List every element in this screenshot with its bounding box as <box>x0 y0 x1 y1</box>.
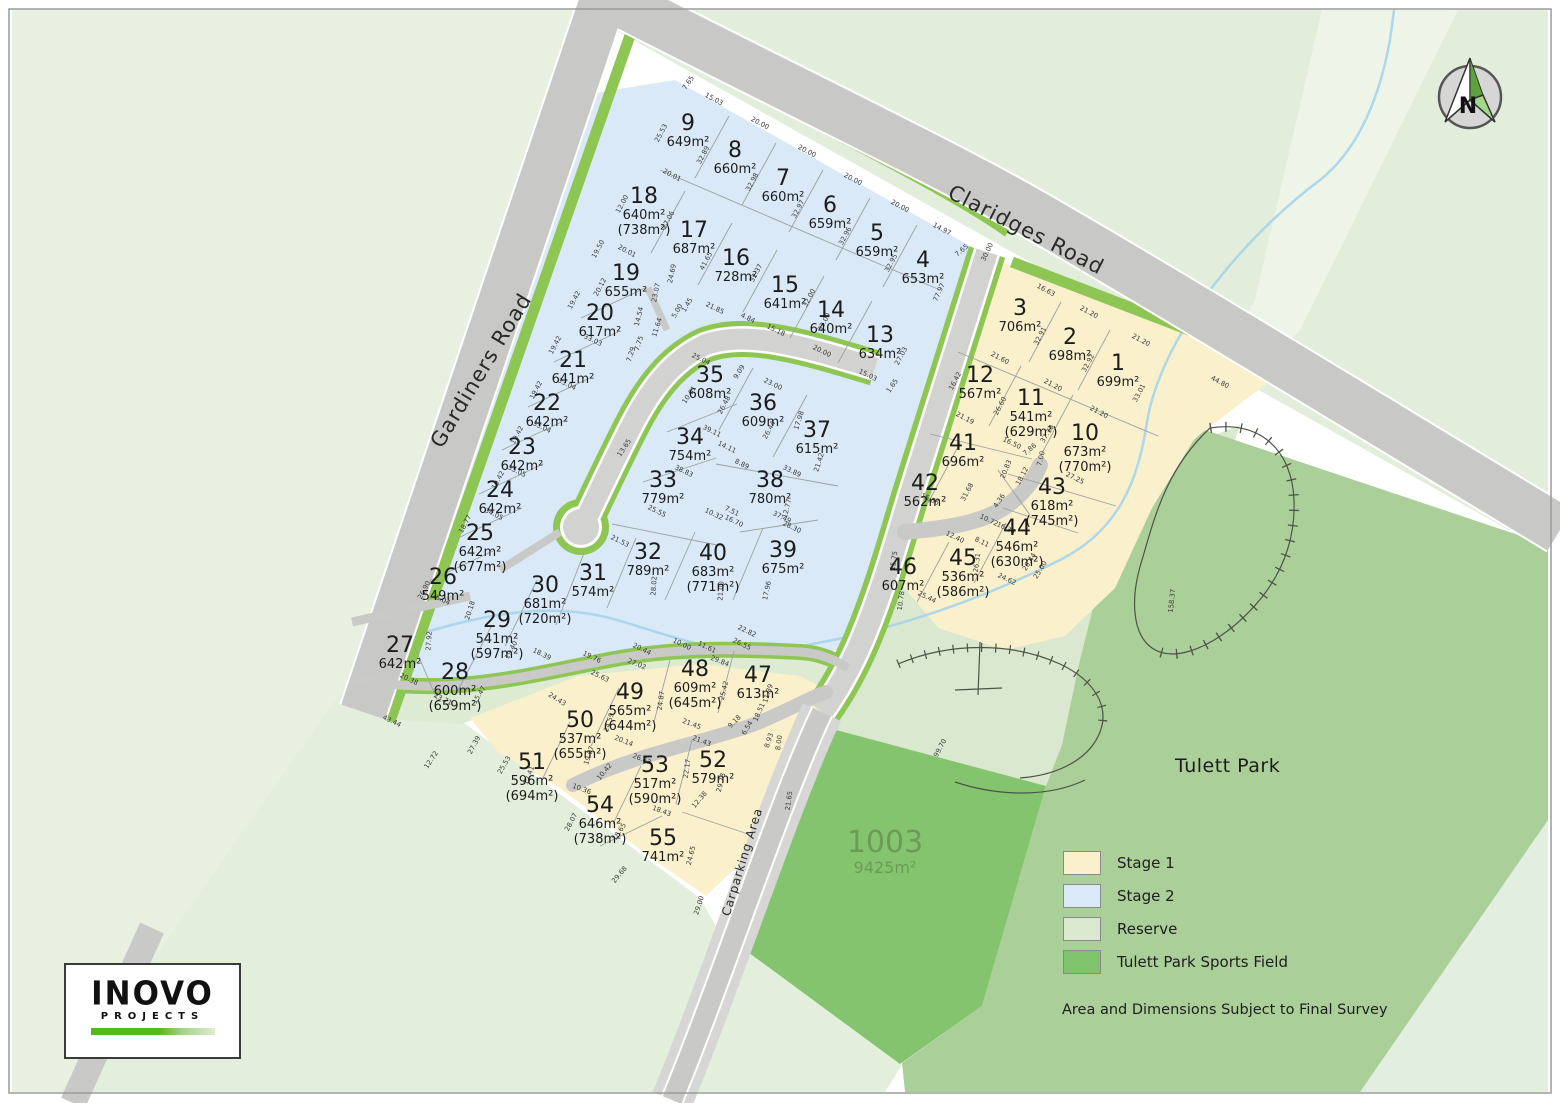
lot-area: 549m² <box>422 589 465 604</box>
lot-number: 12 <box>966 363 994 388</box>
lot-area: 607m² <box>882 579 925 594</box>
lot-number: 33 <box>649 468 677 493</box>
lot-number: 3 <box>1013 296 1027 321</box>
lot-area: 659m² <box>809 217 852 232</box>
lot-area-gross: (655m²) <box>554 747 607 762</box>
lot-area-gross: (597m²) <box>471 647 524 662</box>
lot-area: 574m² <box>572 585 615 600</box>
lot-area: 609m² <box>742 415 785 430</box>
logo-wordmark: INOVO <box>66 978 239 1010</box>
lot-area-gross: (629m²) <box>1005 425 1058 440</box>
lot-area: 640m² <box>810 322 853 337</box>
lot-area: 780m² <box>749 492 792 507</box>
lot-number: 21 <box>559 348 587 373</box>
lot-number: 11 <box>1017 386 1045 411</box>
lot-number: 10 <box>1071 421 1099 446</box>
lot-number: 24 <box>486 478 514 503</box>
lot-area: 681m² <box>524 597 567 612</box>
lot-label-1003: 10039425m² <box>847 825 923 877</box>
lot-area: 600m² <box>434 684 477 699</box>
culdesac-bulb <box>563 509 599 545</box>
lot-number: 16 <box>722 246 750 271</box>
lot-area: 617m² <box>579 325 622 340</box>
lot-area: 562m² <box>904 495 947 510</box>
lot-number: 30 <box>531 573 559 598</box>
lot-number: 39 <box>769 538 797 563</box>
lot-area-gross: (770m²) <box>1059 460 1112 475</box>
legend-item-stage1: Stage 1 <box>1063 852 1403 874</box>
compass-n-letter: N <box>1459 94 1477 119</box>
lot-area-gross: (694m²) <box>506 789 559 804</box>
sports-field-swatch <box>1063 950 1101 974</box>
legend: Stage 1 Stage 2 Reserve Tulett Park Spor… <box>1063 852 1403 984</box>
lot-area: 699m² <box>1097 375 1140 390</box>
lot-area-gross: (586m²) <box>937 585 990 600</box>
lot-number: 34 <box>676 425 704 450</box>
lot-number: 13 <box>866 323 894 348</box>
lot-area: 706m² <box>999 320 1042 335</box>
lot-number: 1 <box>1111 351 1125 376</box>
lot-number: 5 <box>870 221 884 246</box>
lot-number: 55 <box>649 826 677 851</box>
lot-area: 696m² <box>942 455 985 470</box>
lot-area-gross: (590m²) <box>629 792 682 807</box>
legend-label: Reserve <box>1117 920 1177 938</box>
lot-area: 673m² <box>1064 445 1107 460</box>
lot-area: 634m² <box>859 347 902 362</box>
lot-area: 642m² <box>379 657 422 672</box>
lot-number: 15 <box>771 273 799 298</box>
survey-note: Area and Dimensions Subject to Final Sur… <box>1062 1002 1388 1018</box>
lot-number: 22 <box>533 391 561 416</box>
lot-number: 42 <box>911 471 939 496</box>
lot-area: 567m² <box>959 387 1002 402</box>
lot-number: 20 <box>586 301 614 326</box>
lot-area-gross: (738m²) <box>574 832 627 847</box>
lot-area: 565m² <box>609 704 652 719</box>
lot-number: 26 <box>429 565 457 590</box>
lot-area: 537m² <box>559 732 602 747</box>
lot-number: 27 <box>386 633 414 658</box>
lot-area: 642m² <box>479 502 522 517</box>
lot-area: 641m² <box>552 372 595 387</box>
lot-area: 609m² <box>674 681 717 696</box>
lot-area: 683m² <box>692 565 735 580</box>
lot-number: 6 <box>823 193 837 218</box>
logo-gradient-bar <box>91 1028 215 1035</box>
lot-number: 32 <box>634 540 662 565</box>
lot-area: 541m² <box>476 632 519 647</box>
lot-number: 29 <box>483 608 511 633</box>
stage2-swatch <box>1063 884 1101 908</box>
legend-label: Tulett Park Sports Field <box>1117 953 1288 971</box>
lot-number: 9 <box>681 111 695 136</box>
lot-area: 618m² <box>1031 499 1074 514</box>
inovo-logo: INOVO PROJECTS <box>64 963 241 1059</box>
lot-area: 754m² <box>669 449 712 464</box>
lot-area: 642m² <box>459 545 502 560</box>
lot-number: 25 <box>466 521 494 546</box>
lot-area: 596m² <box>511 774 554 789</box>
lot-number: 45 <box>949 546 977 571</box>
lot-number: 19 <box>612 261 640 286</box>
legend-item-reserve: Reserve <box>1063 918 1403 940</box>
lot-area: 687m² <box>673 242 716 257</box>
lot-area: 659m² <box>856 245 899 260</box>
lot-area: 608m² <box>689 387 732 402</box>
lot-number: 1003 <box>847 825 923 860</box>
lot-number: 48 <box>681 657 709 682</box>
lot-area: 579m² <box>692 772 735 787</box>
lot-area: 546m² <box>996 540 1039 555</box>
lot-area-gross: (771m²) <box>687 580 740 595</box>
lot-number: 40 <box>699 541 727 566</box>
lot-area-gross: (659m²) <box>429 699 482 714</box>
lot-area: 660m² <box>762 190 805 205</box>
lot-area: 646m² <box>579 817 622 832</box>
lot-number: 4 <box>916 248 930 273</box>
lot-number: 17 <box>680 218 708 243</box>
lot-area: 640m² <box>623 208 666 223</box>
legend-item-stage2: Stage 2 <box>1063 885 1403 907</box>
reserve-swatch <box>1063 917 1101 941</box>
lot-area: 613m² <box>737 687 780 702</box>
lot-number: 38 <box>756 468 784 493</box>
dimension-label: 27.92 <box>424 631 433 651</box>
lot-number: 44 <box>1003 516 1031 541</box>
lot-number: 31 <box>579 561 607 586</box>
lot-area-gross: (630m²) <box>991 555 1044 570</box>
lot-number: 36 <box>749 391 777 416</box>
lot-area: 728m² <box>715 270 758 285</box>
legend-label: Stage 2 <box>1117 887 1175 905</box>
lot-number: 23 <box>508 435 536 460</box>
lot-area: 615m² <box>796 442 839 457</box>
lot-area: 655m² <box>605 285 648 300</box>
park-label: Tulett Park <box>1175 755 1280 777</box>
legend-item-sports-field: Tulett Park Sports Field <box>1063 951 1403 973</box>
lot-number: 8 <box>728 138 742 163</box>
lot-area: 779m² <box>642 492 685 507</box>
lot-area-gross: (738m²) <box>618 223 671 238</box>
lot-area-gross: (720m²) <box>519 612 572 627</box>
lot-area-gross: (677m²) <box>454 560 507 575</box>
lot-area: 653m² <box>902 272 945 287</box>
lot-number: 49 <box>616 680 644 705</box>
lot-area-gross: (645m²) <box>669 696 722 711</box>
lot-area: 698m² <box>1049 349 1092 364</box>
lot-number: 51 <box>518 750 546 775</box>
lot-number: 37 <box>803 418 831 443</box>
lot-area-gross: (644m²) <box>604 719 657 734</box>
lot-area: 675m² <box>762 562 805 577</box>
lot-number: 28 <box>441 660 469 685</box>
lot-number: 43 <box>1038 475 1066 500</box>
lot-area: 642m² <box>501 459 544 474</box>
lot-number: 35 <box>696 363 724 388</box>
stage1-swatch <box>1063 851 1101 875</box>
lot-area: 789m² <box>627 564 670 579</box>
lot-area: 536m² <box>942 570 985 585</box>
lot-area: 541m² <box>1010 410 1053 425</box>
lot-area-gross: (745m²) <box>1026 514 1079 529</box>
lot-area: 741m² <box>642 850 685 865</box>
lot-number: 18 <box>630 184 658 209</box>
lot-area: 660m² <box>714 162 757 177</box>
lot-area: 641m² <box>764 297 807 312</box>
lot-number: 14 <box>817 298 845 323</box>
lot-number: 50 <box>566 708 594 733</box>
subdivision-plan: 7.6515.0320.0020.0020.0020.0014.9725.533… <box>0 0 1560 1103</box>
lot-area: 649m² <box>667 135 710 150</box>
lot-number: 2 <box>1063 325 1077 350</box>
lot-number: 46 <box>889 555 917 580</box>
lot-number: 54 <box>586 793 614 818</box>
lot-number: 53 <box>641 753 669 778</box>
legend-label: Stage 1 <box>1117 854 1175 872</box>
lot-number: 52 <box>699 748 727 773</box>
lot-area: 517m² <box>634 777 677 792</box>
lot-area: 642m² <box>526 415 569 430</box>
lot-number: 47 <box>744 663 772 688</box>
lot-number: 41 <box>949 431 977 456</box>
lot-number: 7 <box>776 166 790 191</box>
lot-area: 9425m² <box>854 858 917 877</box>
